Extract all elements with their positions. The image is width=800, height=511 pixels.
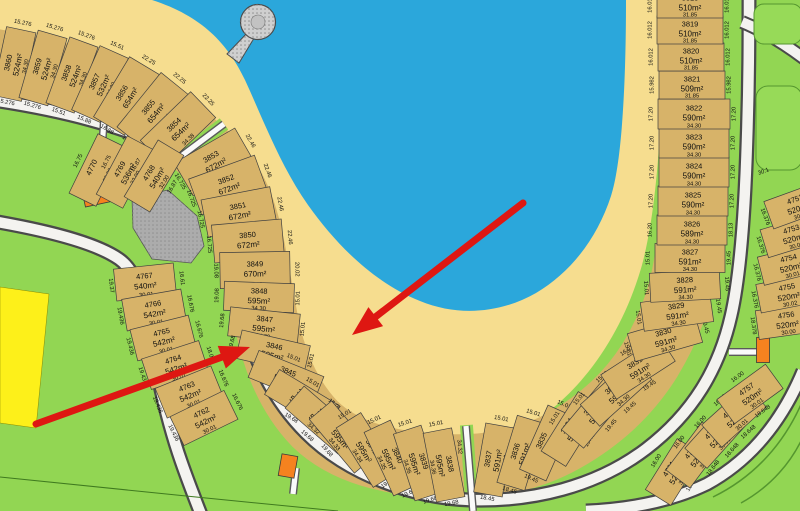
- lot-3826[interactable]: 3826589m²34.3016.2018.13: [648, 215, 735, 246]
- lot-area: 591m²: [674, 285, 697, 295]
- lot-area: 590m²: [683, 143, 706, 152]
- lot-number: 3818: [682, 0, 699, 3]
- lot-area: 590m²: [682, 201, 705, 210]
- lot-3827[interactable]: 3827591m²34.3015.0119.45: [646, 244, 733, 274]
- lot-area: 510m²: [679, 4, 702, 13]
- lot-depth-dim: 34.30: [687, 182, 702, 188]
- lot-frontage-dim: 17.20: [649, 194, 655, 209]
- lot-number: 3849: [246, 259, 263, 268]
- lot-depth-dim: 31.85: [685, 94, 700, 100]
- lot-3819[interactable]: 3819510m²31.8516.01216.012: [648, 16, 731, 45]
- verge-island-1: [754, 4, 800, 44]
- lot-rear-dim: 17.20: [731, 165, 737, 180]
- lot-depth-dim: 34.30: [686, 211, 701, 217]
- lot-depth-dim: 34.30: [687, 124, 702, 130]
- lot-area: 591m²: [679, 258, 702, 267]
- lot-area: 589m²: [681, 230, 704, 239]
- lot-number: 3828: [676, 275, 693, 285]
- lot-area: 510m²: [679, 30, 702, 39]
- lot-3823[interactable]: 3823590m²34.3017.2017.20: [650, 128, 737, 159]
- lot-depth-dim: 34.30: [685, 240, 700, 246]
- lot-depth-dim: 31.85: [684, 66, 699, 72]
- lot-3848[interactable]: 3848595m²34.3015.0119.08: [214, 281, 302, 314]
- lot-number: 3824: [686, 162, 703, 171]
- lot-rear-dim: 19.45: [727, 251, 733, 266]
- lot-3825[interactable]: 3825590m²34.3017.2017.20: [649, 186, 736, 217]
- lot-number: 3826: [684, 220, 701, 229]
- lot-rear-dim: 16.012: [725, 0, 731, 13]
- lot-rear-dim: 19.08: [214, 288, 221, 303]
- lot-area: 509m²: [681, 85, 704, 94]
- lot-frontage-dim: 17.20: [650, 165, 656, 180]
- extra-dim: 34.32: [455, 439, 462, 454]
- lot-depth-dim: 34.30: [683, 267, 698, 273]
- building-marker-2: [278, 454, 298, 478]
- lot-number: 3822: [686, 104, 703, 113]
- lot-number: 3819: [682, 20, 699, 29]
- lot-frontage-dim: 15.982: [650, 76, 656, 94]
- lot-3818[interactable]: 3818510m²31.8516.01216.012: [648, 0, 731, 19]
- lot-depth-dim: 31.85: [683, 39, 698, 45]
- lot-frontage-dim: 20.02: [293, 262, 299, 277]
- lot-number: 4767: [136, 271, 154, 282]
- cadastral-map: 3860524m²34.3015.27615.2763859524m²34.30…: [0, 0, 800, 511]
- lot-3822[interactable]: 3822590m²34.3017.2017.20: [649, 99, 738, 130]
- lot-3824[interactable]: 3824590m²34.3017.2017.20: [650, 157, 737, 188]
- lot-frontage-dim: 16.012: [649, 48, 655, 66]
- lot-frontage-dim: 16.012: [648, 0, 654, 13]
- lot-number: 3827: [682, 248, 699, 257]
- lot-rear-dim: 19.08: [212, 263, 218, 278]
- lot-frontage-dim: 15.01: [646, 251, 652, 266]
- lot-frontage-dim: 22.46: [286, 230, 293, 245]
- lot-depth-dim: 34.30: [687, 153, 702, 159]
- verge-island-2: [756, 86, 800, 170]
- lot-3820[interactable]: 3820510m²31.8516.01216.012: [649, 43, 732, 72]
- lot-number: 3848: [251, 286, 268, 296]
- lot-area: 510m²: [680, 57, 703, 66]
- lot-area: 590m²: [683, 172, 706, 181]
- lot-number: 3850: [239, 230, 256, 240]
- map-root: 3860524m²34.3015.27615.2763859524m²34.30…: [0, 0, 800, 511]
- lot-rear-dim: 19.45: [723, 276, 730, 291]
- lot-number: 3823: [686, 133, 703, 142]
- lot-depth-dim: 31.85: [683, 13, 698, 19]
- lot-frontage-dim: 17.20: [649, 107, 655, 122]
- lot-frontage-dim: 15.01: [295, 291, 302, 306]
- lot-area: 670m²: [244, 269, 267, 278]
- lot-rear-dim: 16.012: [725, 21, 731, 39]
- lot-number: 3820: [683, 47, 700, 56]
- lot-frontage-dim: 16.20: [648, 223, 654, 238]
- lot-number: 3847: [256, 314, 274, 325]
- lot-number: 3821: [684, 75, 701, 84]
- lot-area: 590m²: [683, 114, 706, 123]
- lot-number: 3825: [685, 191, 702, 200]
- lot-frontage-dim: 17.20: [650, 136, 656, 151]
- lot-frontage-dim: 15.01: [642, 281, 649, 296]
- lot-area: 595m²: [247, 296, 270, 306]
- lot-rear-dim: 15.982: [727, 76, 733, 94]
- lot-rear-dim: 17.20: [731, 136, 737, 151]
- lot-depth-dim: 34.30: [678, 295, 693, 302]
- lot-3821[interactable]: 3821509m²31.8515.98215.982: [650, 71, 733, 100]
- lot-rear-dim: 17.20: [732, 107, 738, 122]
- building-marker-3: [757, 338, 770, 363]
- lot-frontage-dim: 16.012: [648, 21, 654, 39]
- lot-rear-dim: 16.012: [726, 48, 732, 66]
- lot-rear-dim: 18.13: [729, 223, 735, 238]
- lot-rear-dim: 17.20: [730, 194, 736, 209]
- lot-3828[interactable]: 3828591m²34.3015.0119.45: [642, 269, 730, 303]
